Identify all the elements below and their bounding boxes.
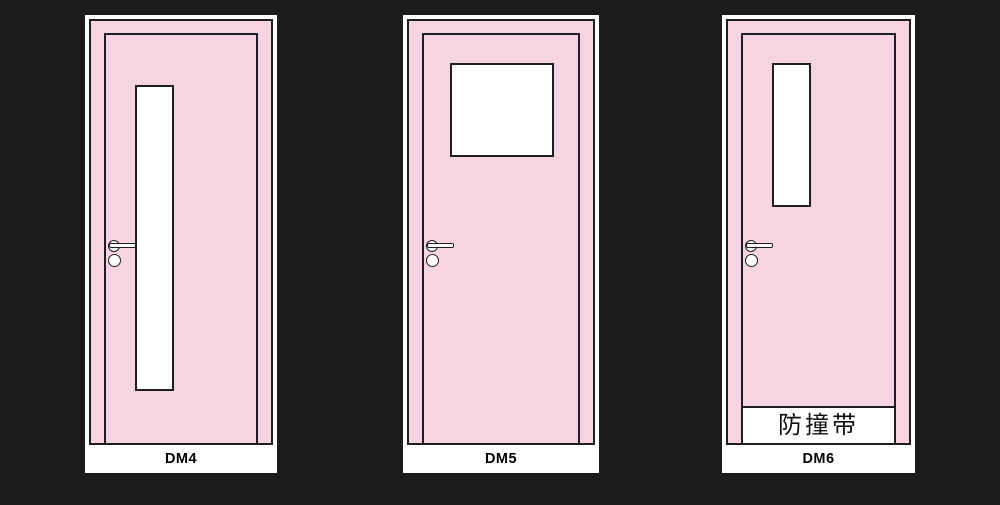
- door-label: DM4: [85, 445, 277, 473]
- vision-panel: [450, 63, 554, 157]
- bumper-strip: 防撞带: [743, 406, 894, 443]
- door-leaf-outline: 防撞带: [741, 33, 896, 443]
- vision-panel: [135, 85, 174, 391]
- door-card-dm5: DM5: [403, 15, 599, 473]
- door-leaf-outline: [104, 33, 258, 443]
- lock-cylinder-icon: [426, 254, 439, 267]
- lock-cylinder-icon: [108, 254, 121, 267]
- vision-panel: [772, 63, 811, 207]
- lever-handle-bar-icon: [109, 243, 136, 248]
- door-card-dm6: 防撞带 DM6: [722, 15, 915, 473]
- canvas: DM4 DM5 防撞带 DM6: [0, 0, 1000, 505]
- door-face-dm6: 防撞带: [726, 19, 911, 445]
- door-face-dm4: [89, 19, 273, 445]
- door-label: DM5: [403, 445, 599, 473]
- door-label: DM6: [722, 445, 915, 473]
- door-face-dm5: [407, 19, 595, 445]
- door-card-dm4: DM4: [85, 15, 277, 473]
- lever-handle-bar-icon: [427, 243, 454, 248]
- lock-cylinder-icon: [745, 254, 758, 267]
- lever-handle-bar-icon: [746, 243, 773, 248]
